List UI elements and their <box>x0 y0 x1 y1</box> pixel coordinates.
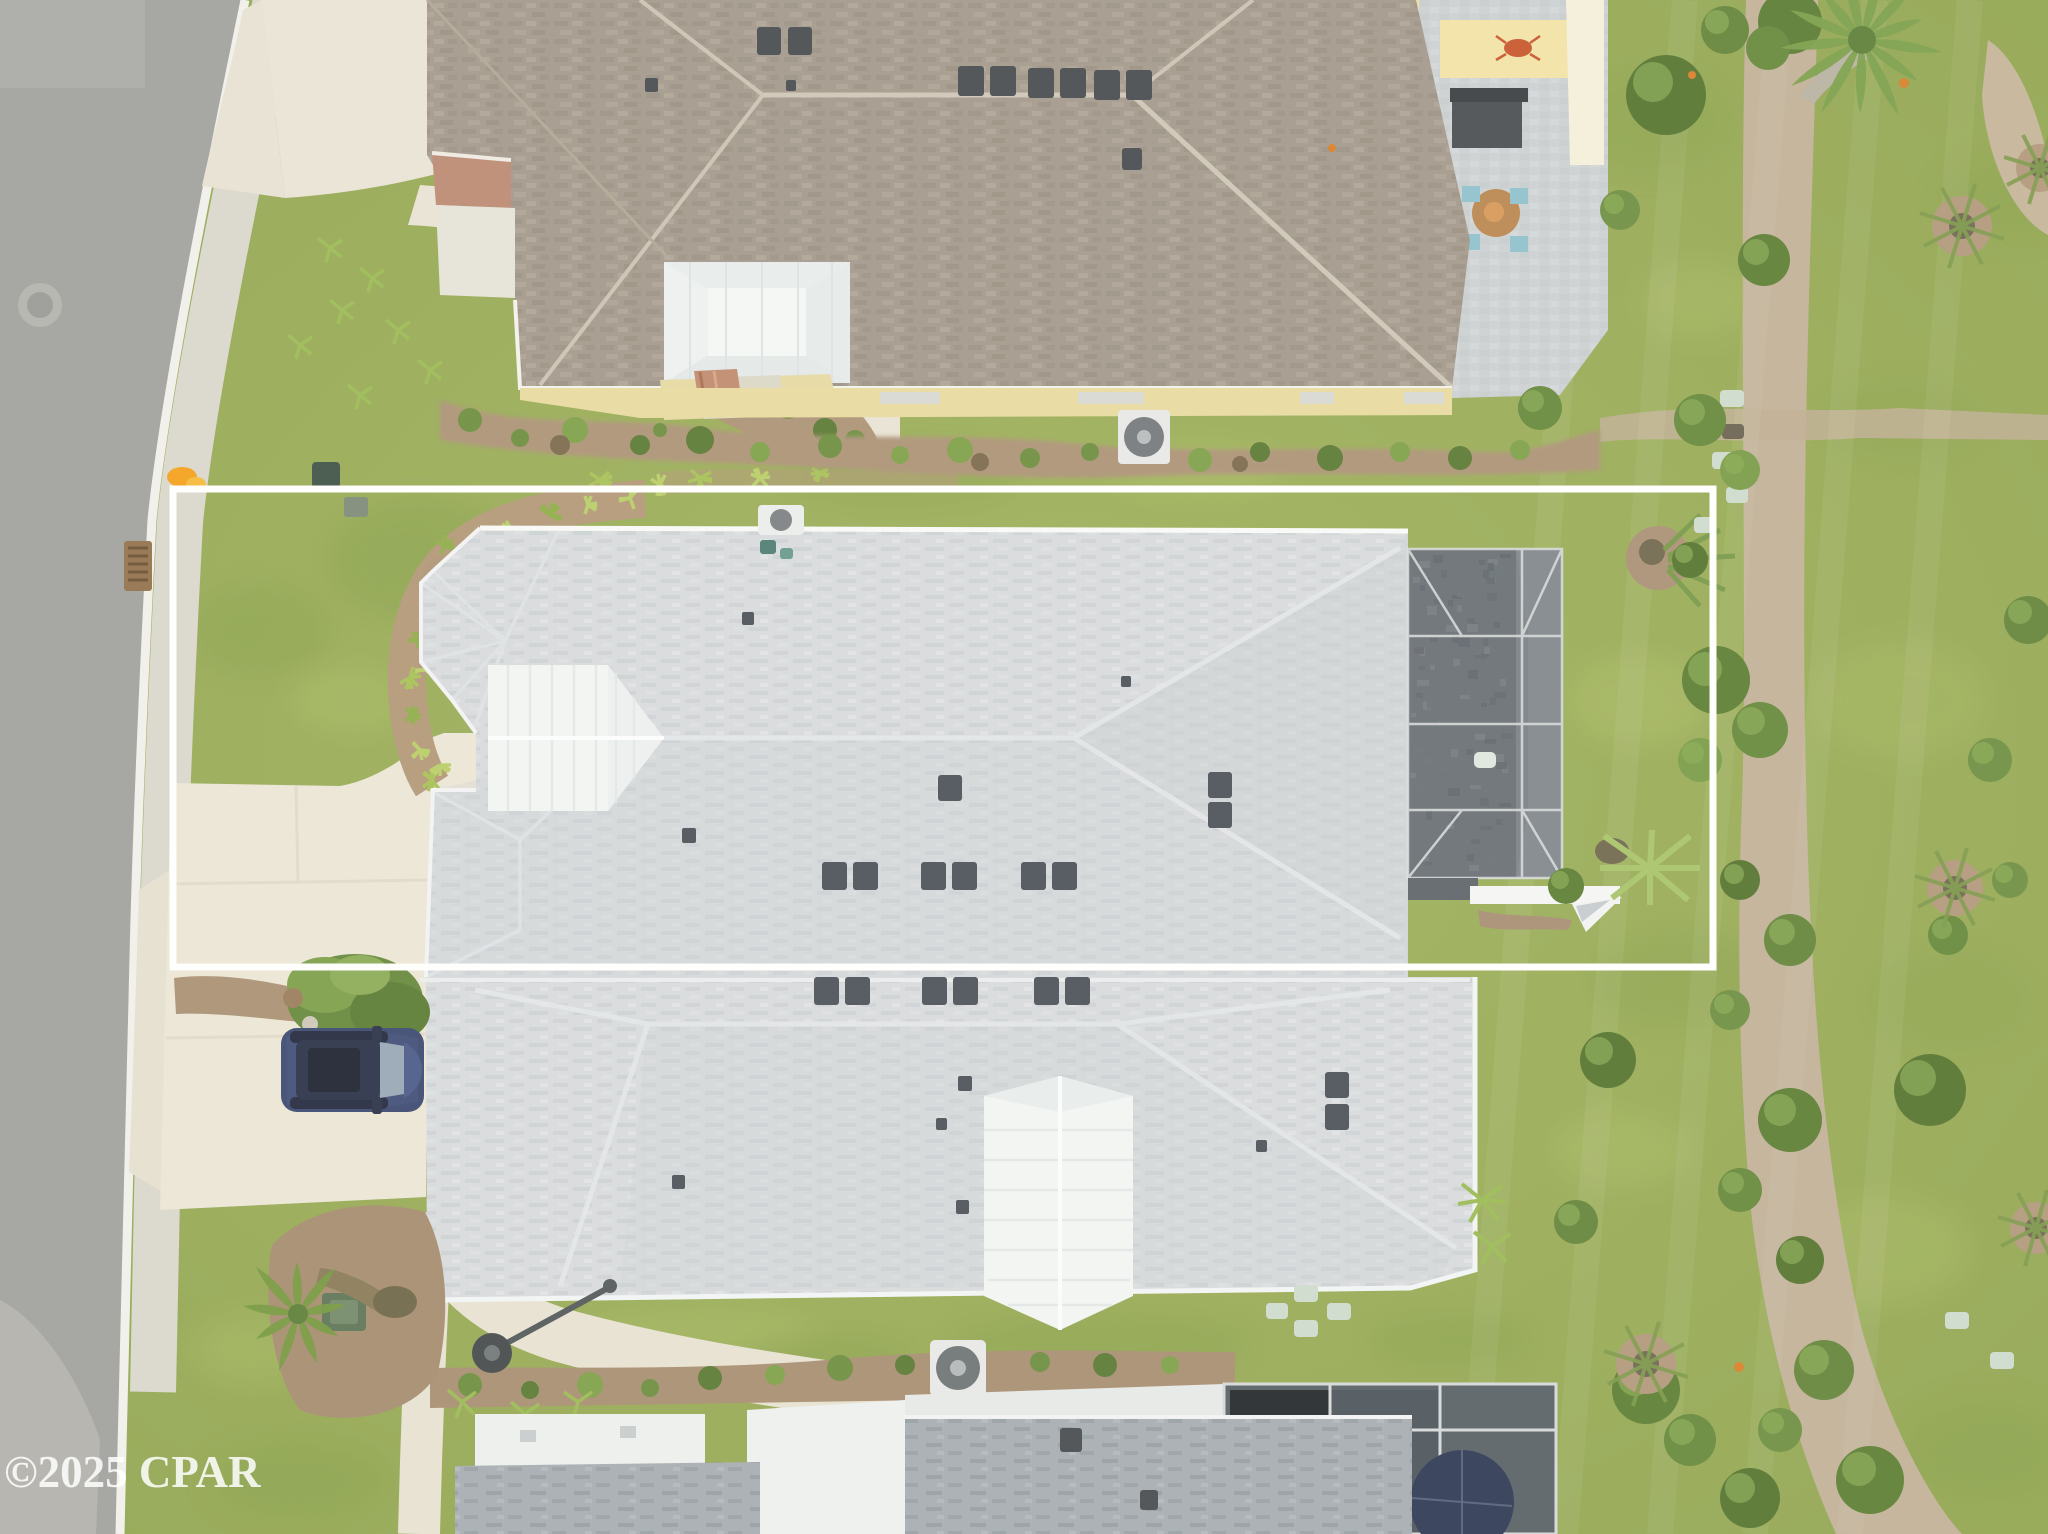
svg-text:©2025 CPAR: ©2025 CPAR <box>4 1447 261 1497</box>
